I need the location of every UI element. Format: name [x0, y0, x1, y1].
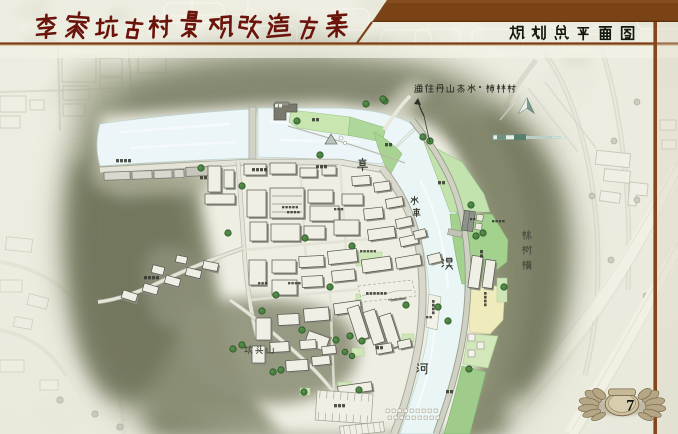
svg-text:7: 7	[626, 398, 634, 415]
